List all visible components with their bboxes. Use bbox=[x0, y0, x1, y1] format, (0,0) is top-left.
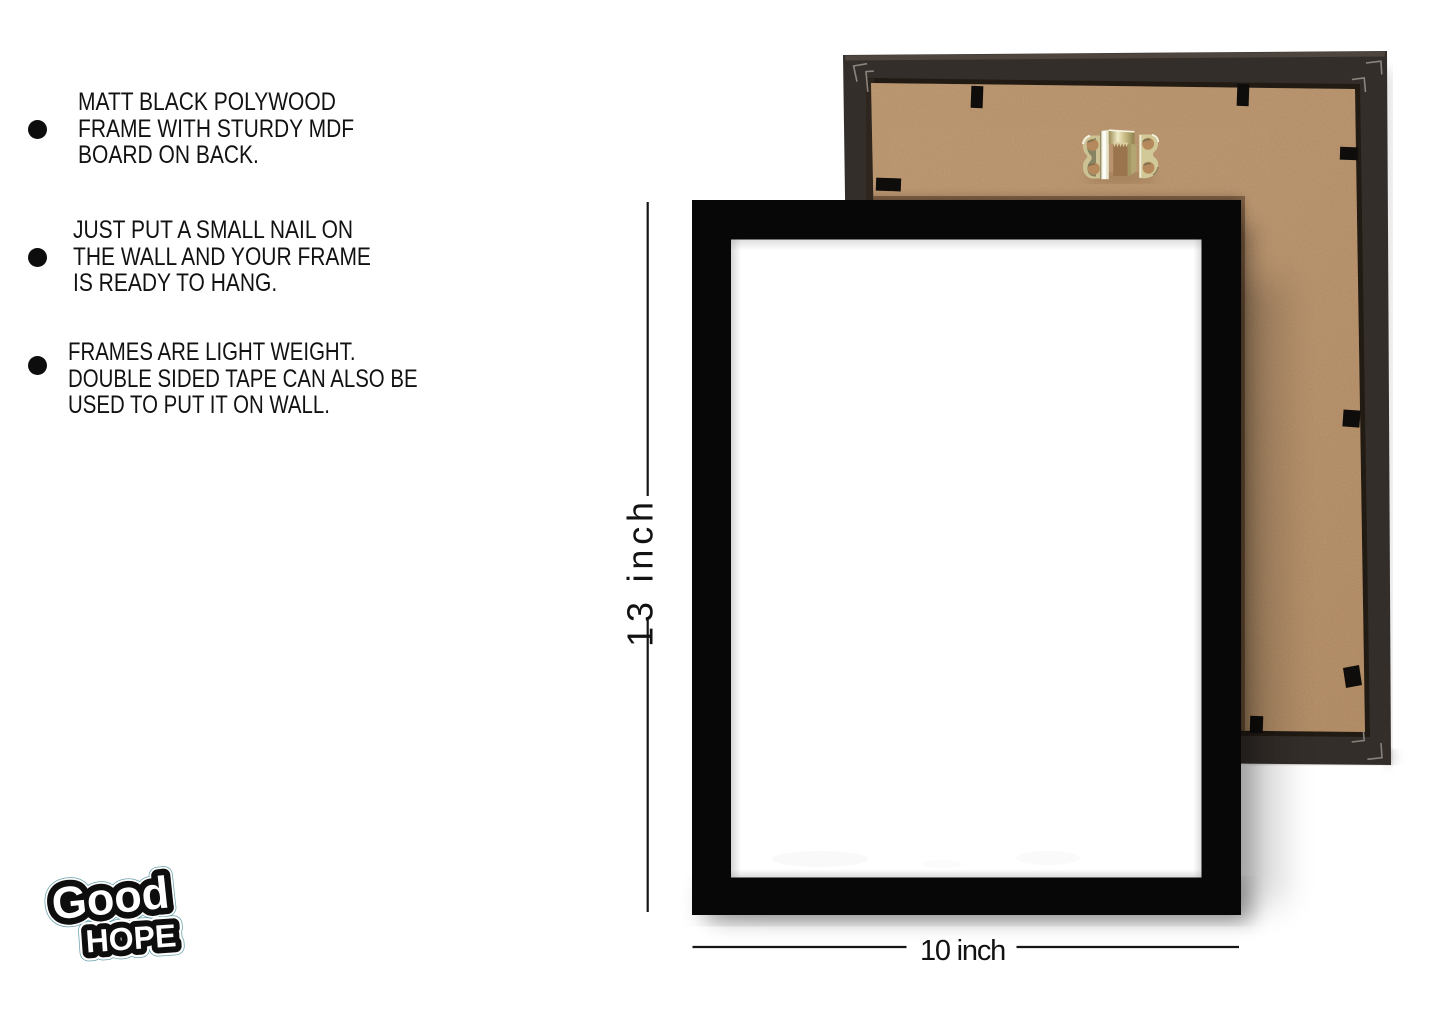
svg-text:10 inch: 10 inch bbox=[920, 935, 1005, 967]
svg-text:HOPE: HOPE bbox=[84, 917, 177, 959]
svg-text:13 inch: 13 inch bbox=[620, 497, 661, 647]
